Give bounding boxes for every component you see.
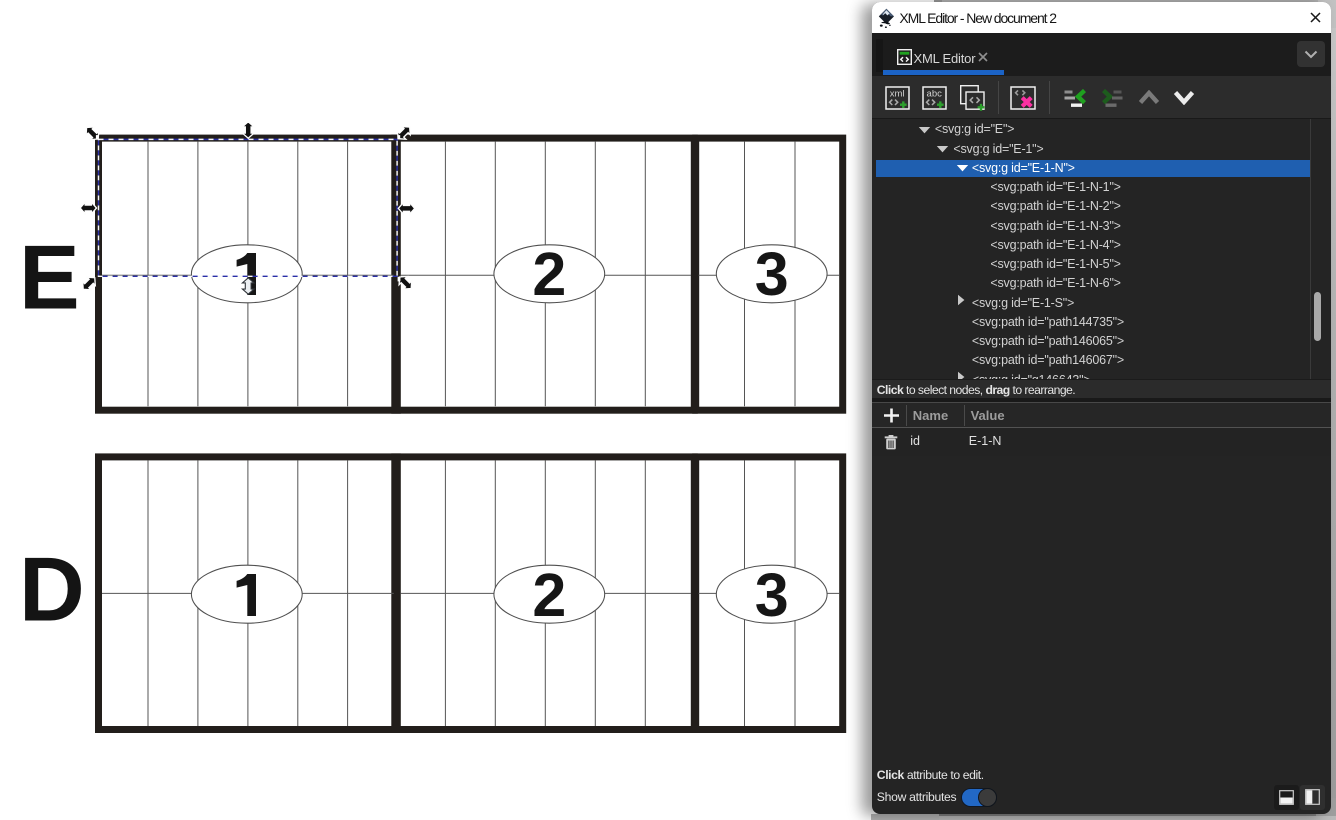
svg-text:abc: abc bbox=[926, 88, 942, 99]
svg-text:3: 3 bbox=[755, 240, 789, 308]
svg-text:D: D bbox=[19, 540, 85, 641]
svg-text:3: 3 bbox=[755, 561, 789, 629]
svg-text:2: 2 bbox=[532, 561, 566, 629]
svg-text:2: 2 bbox=[532, 240, 566, 308]
svg-text:E: E bbox=[19, 228, 80, 329]
svg-text:xml: xml bbox=[889, 88, 904, 99]
